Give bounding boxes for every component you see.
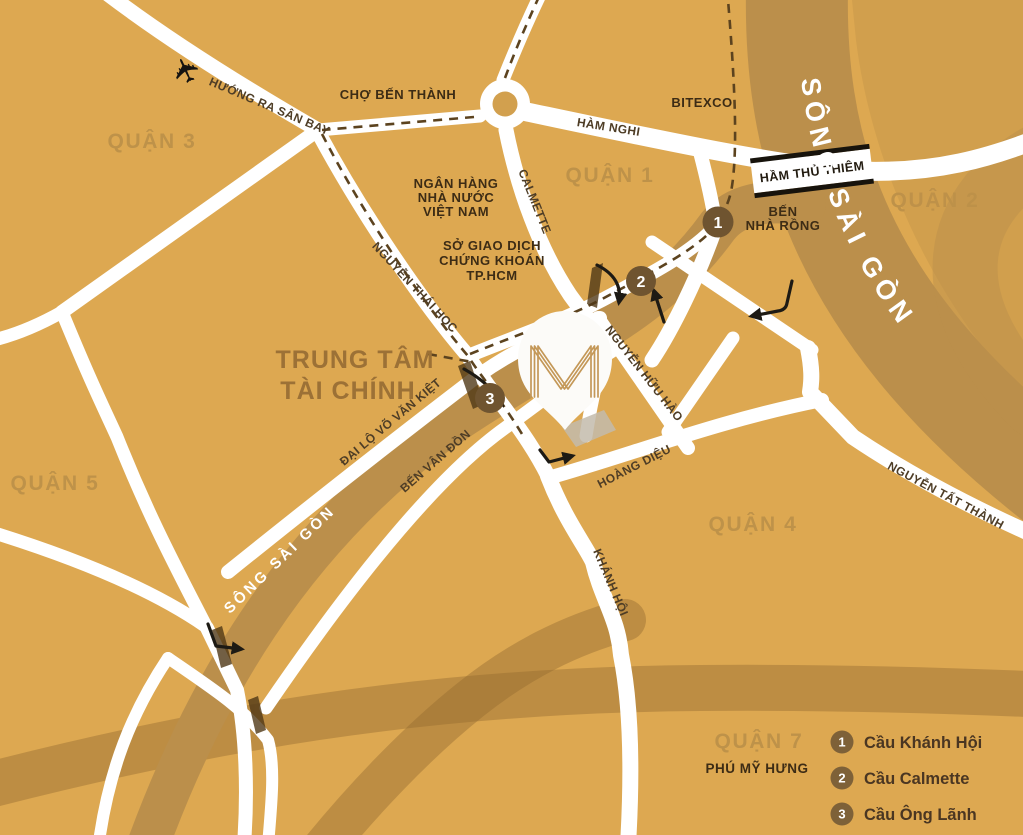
badge-2-number: 2: [637, 274, 646, 291]
district-label-quan-2: QUẬN 2: [891, 188, 980, 212]
district-label-quan-1: QUẬN 1: [566, 163, 655, 187]
svg-text:TP.HCM: TP.HCM: [466, 268, 517, 283]
legend-label-1: Cầu Khánh Hội: [864, 734, 982, 752]
legend-badge-1-number: 1: [838, 735, 845, 750]
badge-1-cau-khanh-hoi: 1: [703, 207, 734, 238]
svg-text:NHÀ RỒNG: NHÀ RỒNG: [746, 218, 821, 233]
legend-label-3: Cầu Ông Lãnh: [864, 805, 977, 824]
legend-badge-3-number: 3: [838, 807, 845, 822]
svg-text:NGÂN HÀNG: NGÂN HÀNG: [414, 176, 499, 191]
svg-text:NHÀ NƯỚC: NHÀ NƯỚC: [418, 190, 495, 205]
place-label-phu-my-hung: PHÚ MỸ HƯNG: [706, 761, 809, 776]
ben-thanh-roundabout: [480, 79, 530, 129]
city-location-map: HẦM THỦ THIÊM 1 2 3 ✈: [0, 0, 1023, 835]
svg-text:TÀI CHÍNH: TÀI CHÍNH: [280, 376, 415, 405]
legend-badge-2-number: 2: [838, 771, 845, 786]
place-label-ngan-hang-nha-nuoc: NGÂN HÀNG NHÀ NƯỚC VIỆT NAM: [414, 176, 499, 219]
legend-label-2: Cầu Calmette: [864, 770, 969, 788]
district-label-quan-4: QUẬN 4: [709, 512, 798, 536]
badge-3-cau-ong-lanh: 3: [475, 383, 505, 413]
map-canvas: HẦM THỦ THIÊM 1 2 3 ✈: [0, 0, 1023, 835]
svg-text:SỞ GIAO DỊCH: SỞ GIAO DỊCH: [443, 238, 541, 253]
district-label-quan-5: QUẬN 5: [11, 471, 100, 495]
svg-text:BẾN: BẾN: [769, 204, 798, 219]
svg-text:VIỆT NAM: VIỆT NAM: [423, 204, 489, 219]
badge-3-number: 3: [486, 391, 495, 408]
roundabout-inner: [493, 92, 518, 117]
badge-1-number: 1: [714, 215, 723, 232]
svg-text:CHỨNG KHOÁN: CHỨNG KHOÁN: [439, 253, 545, 268]
district-label-quan-7: QUẬN 7: [715, 729, 804, 753]
place-label-cho-ben-thanh: CHỢ BẾN THÀNH: [340, 87, 457, 102]
place-label-bitexco: BITEXCO: [671, 95, 732, 110]
svg-text:TRUNG TÂM: TRUNG TÂM: [276, 344, 435, 374]
badge-2-cau-calmette: 2: [626, 266, 656, 296]
district-label-quan-3: QUẬN 3: [108, 129, 197, 153]
